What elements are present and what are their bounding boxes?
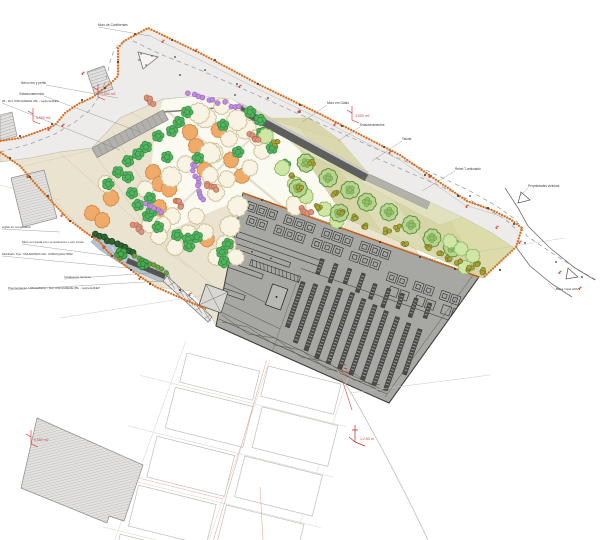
svg-text:Estacionamentos: Estacionamentos <box>20 92 45 96</box>
svg-text:Muro em Gabio: Muro em Gabio <box>327 101 349 105</box>
svg-text:Propriedades vizinhas: Propriedades vizinhas <box>528 184 560 188</box>
svg-text:Pavimentacao ‘UMUE0560A’ - Ref: Pavimentacao ‘UMUE0560A’ - Ref. IPROGRED… <box>8 286 100 290</box>
svg-text:Nervo em y perfis: Nervo em y perfis <box>21 81 46 85</box>
svg-text:Talude: Talude <box>402 137 412 141</box>
svg-text:Muro de Contiforntes: Muro de Contiforntes <box>98 23 128 27</box>
svg-text:1:2.50 m: 1:2.50 m <box>360 437 374 441</box>
svg-text:Estacionamentos: Estacionamentos <box>360 123 385 127</box>
svg-text:5.500 m2: 5.500 m2 <box>34 438 49 442</box>
svg-text:AgSel.to/ cooperativa: AgSel.to/ cooperativa <box>2 225 31 229</box>
svg-text:Barra impia HRV: Barra impia HRV <box>556 287 578 291</box>
svg-text:Mobiliario Tipo ‘UMUE0560A’ Re: Mobiliario Tipo ‘UMUE0560A’ Ref. UKBUKgs… <box>2 252 73 256</box>
svg-text:Instalacoes tecnicas: Instalacoes tecnicas <box>64 275 92 279</box>
svg-text:3.500 m2: 3.500 m2 <box>355 114 370 118</box>
svg-text:Rebel T-articulado: Rebel T-articulado <box>455 167 481 171</box>
svg-text:Muro em barda com revestimento: Muro em barda com revestimento e aco cor… <box>22 240 85 244</box>
svg-text:05 - Ref. IPROGREDE 05L - wp/p: 05 - Ref. IPROGREDE 05L - wp/peGdKE0 <box>2 99 59 103</box>
